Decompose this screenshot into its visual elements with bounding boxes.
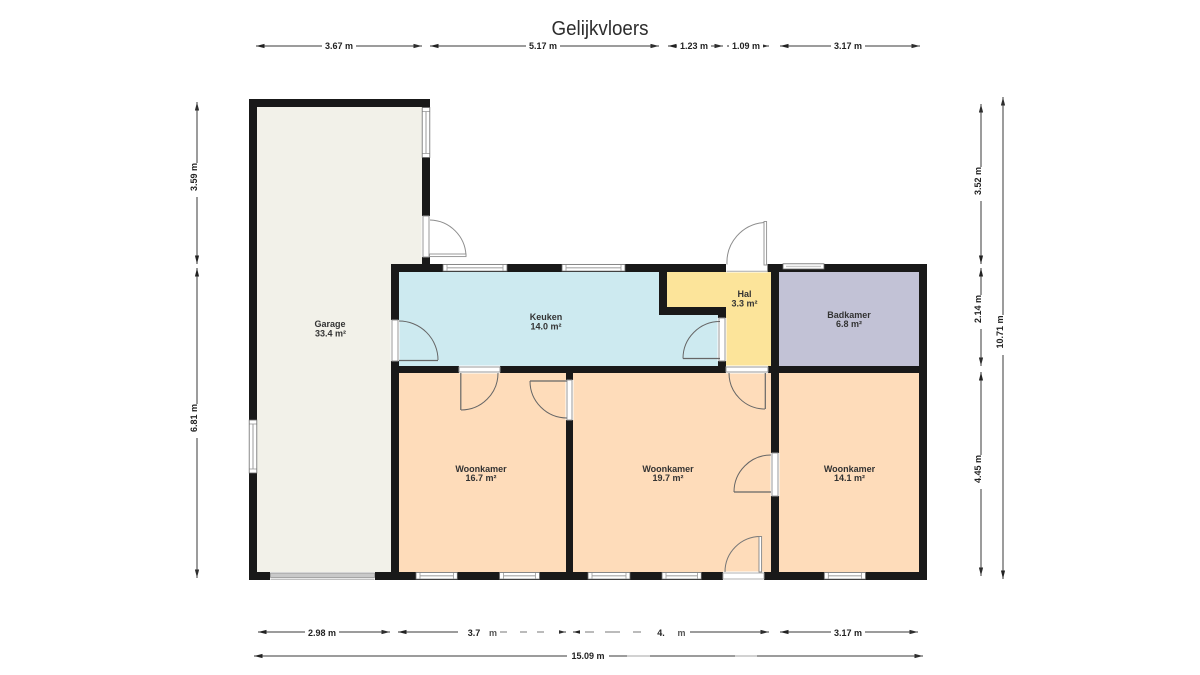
svg-text:m: m xyxy=(677,628,685,638)
svg-text:Hal: Hal xyxy=(737,289,751,299)
svg-text:3.17 m: 3.17 m xyxy=(834,41,862,51)
svg-text:2.98 m: 2.98 m xyxy=(308,628,336,638)
svg-text:4.45 m: 4.45 m xyxy=(973,455,983,483)
svg-text:19.7 m²: 19.7 m² xyxy=(652,473,683,483)
svg-text:14.0 m²: 14.0 m² xyxy=(530,321,561,331)
svg-text:10.71 m: 10.71 m xyxy=(995,315,1005,348)
svg-text:Gelijkvloers: Gelijkvloers xyxy=(552,18,649,40)
svg-text:3.59 m: 3.59 m xyxy=(189,163,199,191)
svg-text:3.17 m: 3.17 m xyxy=(834,628,862,638)
svg-text:4.: 4. xyxy=(657,628,665,638)
svg-text:m: m xyxy=(489,628,497,638)
svg-text:6.8 m²: 6.8 m² xyxy=(836,319,862,329)
svg-text:6.81 m: 6.81 m xyxy=(189,404,199,432)
svg-text:33.4 m²: 33.4 m² xyxy=(315,328,346,338)
svg-text:3.52 m: 3.52 m xyxy=(973,167,983,195)
svg-text:14.1 m²: 14.1 m² xyxy=(834,473,865,483)
svg-text:15.09 m: 15.09 m xyxy=(571,651,604,661)
svg-text:3.3 m²: 3.3 m² xyxy=(731,299,757,309)
svg-text:1.23 m: 1.23 m xyxy=(680,41,708,51)
svg-text:1.09 m: 1.09 m xyxy=(732,41,760,51)
svg-text:3.7: 3.7 xyxy=(468,628,481,638)
svg-text:5.17 m: 5.17 m xyxy=(529,41,557,51)
svg-text:3.67 m: 3.67 m xyxy=(325,41,353,51)
svg-text:16.7 m²: 16.7 m² xyxy=(465,473,496,483)
svg-text:2.14 m: 2.14 m xyxy=(973,295,983,323)
